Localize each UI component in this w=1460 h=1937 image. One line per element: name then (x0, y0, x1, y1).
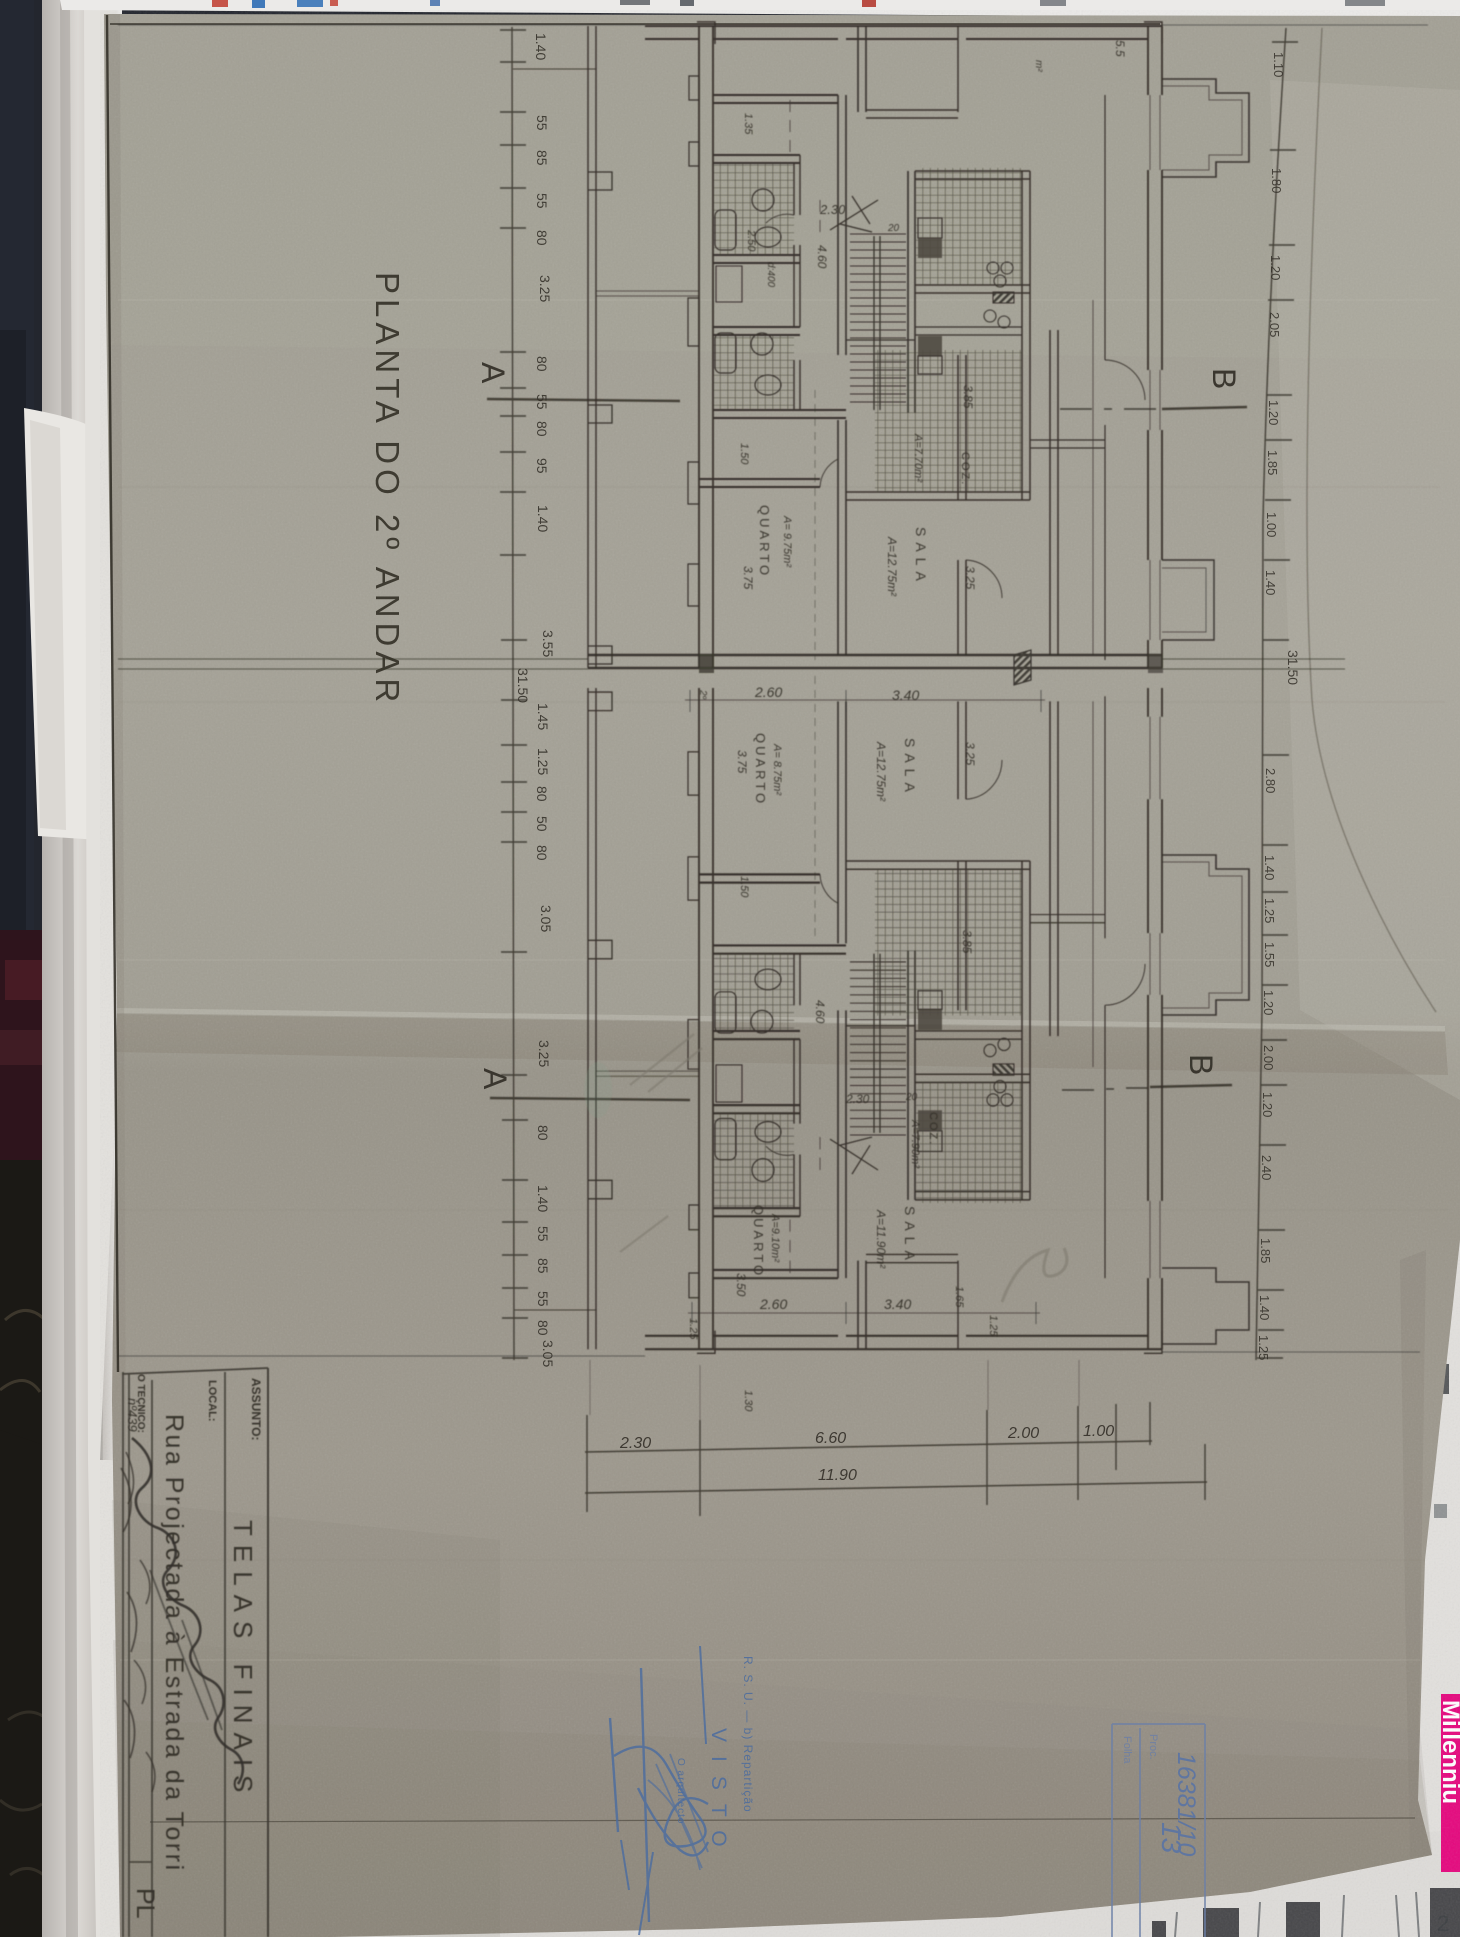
svg-text:1.20: 1.20 (1261, 990, 1276, 1015)
svg-text:11.90: 11.90 (818, 1467, 857, 1484)
svg-text:1.00: 1.00 (1083, 1423, 1114, 1440)
svg-text:1.20: 1.20 (1260, 1092, 1275, 1117)
svg-text:3.25: 3.25 (963, 742, 977, 766)
svg-text:1.40: 1.40 (1263, 570, 1278, 595)
svg-text:A: A (477, 1068, 513, 1090)
svg-text:3.75: 3.75 (741, 566, 755, 590)
svg-text:1.25: 1.25 (687, 1318, 699, 1340)
svg-text:1.80: 1.80 (1269, 168, 1284, 193)
svg-text:Folha: Folha (1121, 1736, 1133, 1764)
svg-text:1.25: 1.25 (1256, 1335, 1271, 1360)
svg-text:1.40: 1.40 (533, 33, 549, 60)
svg-text:95: 95 (534, 458, 550, 474)
svg-text:A=12.75m²: A=12.75m² (885, 536, 899, 597)
svg-text:1.50: 1.50 (738, 876, 750, 898)
svg-text:A= 8.75m²: A= 8.75m² (771, 743, 783, 795)
svg-text:1.35: 1.35 (742, 113, 754, 135)
svg-text:1.40: 1.40 (535, 1185, 551, 1212)
svg-text:1.10: 1.10 (1271, 52, 1286, 77)
svg-text:3.25: 3.25 (536, 1040, 552, 1067)
svg-text:QUARTO: QUARTO (751, 1205, 766, 1278)
svg-text:2.40: 2.40 (1259, 1155, 1274, 1180)
svg-text:55: 55 (534, 394, 550, 410)
svg-text:PL: PL (131, 1888, 159, 1919)
svg-text:1.40: 1.40 (1257, 1295, 1272, 1320)
svg-text:5.5: 5.5 (1113, 40, 1127, 57)
svg-text:80: 80 (535, 1125, 551, 1141)
svg-text:80: 80 (534, 230, 550, 246)
svg-text:80: 80 (534, 421, 550, 437)
svg-text:3.40: 3.40 (892, 687, 919, 703)
svg-text:B: B (1183, 1054, 1219, 1075)
svg-text:80: 80 (534, 786, 550, 802)
svg-text:nº439: nº439 (125, 1398, 140, 1432)
svg-text:2.00: 2.00 (1007, 1425, 1039, 1442)
svg-text:2.00: 2.00 (1261, 1045, 1276, 1070)
svg-text:80: 80 (534, 356, 550, 372)
svg-text:6.60: 6.60 (815, 1430, 846, 1447)
svg-text:20: 20 (905, 1092, 918, 1103)
svg-text:2.60: 2.60 (754, 684, 782, 700)
svg-text:2.30: 2.30 (619, 1435, 651, 1452)
svg-text:31.50: 31.50 (1285, 650, 1301, 685)
svg-text:m²: m² (1033, 60, 1044, 72)
svg-text:R. S. U. — b) Repartição: R. S. U. — b) Repartição (741, 1656, 755, 1813)
svg-text:SALA: SALA (902, 738, 918, 798)
svg-text:1.25: 1.25 (987, 1315, 999, 1337)
svg-text:3.40: 3.40 (884, 1296, 911, 1312)
svg-text:A=11.90m²: A=11.90m² (874, 1209, 888, 1269)
svg-text:2º: 2º (697, 689, 708, 701)
svg-text:LOCAL:: LOCAL: (206, 1380, 218, 1422)
svg-text:3.05: 3.05 (540, 1340, 556, 1367)
svg-text:A=7.70m²: A=7.70m² (912, 433, 924, 482)
svg-text:A= 9.75m²: A= 9.75m² (781, 515, 793, 567)
svg-text:55: 55 (535, 1226, 551, 1242)
svg-text:A=7.90m²: A=7.90m² (909, 1119, 921, 1168)
svg-text:80: 80 (534, 845, 550, 861)
svg-text:2.30: 2.30 (819, 202, 846, 217)
svg-text:2.60: 2.60 (759, 1296, 787, 1312)
svg-text:SALA: SALA (902, 1206, 918, 1266)
svg-text:1.25: 1.25 (535, 748, 551, 775)
svg-text:COZ.: COZ. (959, 452, 971, 486)
svg-text:55: 55 (535, 1291, 551, 1307)
svg-text:55: 55 (534, 193, 550, 209)
svg-text:B: B (1206, 368, 1242, 389)
svg-text:Rua Projectada à Estrada d: Rua Projectada à Estrada da Torri (160, 1414, 188, 1873)
svg-text:1.45: 1.45 (535, 703, 551, 730)
svg-text:1.65: 1.65 (953, 1286, 965, 1308)
svg-text:1.00: 1.00 (1264, 512, 1279, 537)
svg-text:1.25: 1.25 (1262, 898, 1277, 923)
svg-text:PLANTA DO 2º ANDAR: PLANTA DO 2º ANDAR (369, 272, 406, 707)
svg-text:2.30: 2.30 (845, 1092, 870, 1106)
svg-text:3.75: 3.75 (735, 750, 749, 774)
svg-text:TELAS FINAIS: TELAS FINAIS (228, 1520, 258, 1801)
svg-text:QUARTO: QUARTO (757, 505, 772, 578)
svg-text:80: 80 (535, 1320, 551, 1336)
svg-text:3.25: 3.25 (963, 566, 977, 590)
svg-text:COZ.: COZ. (927, 1112, 939, 1146)
svg-text:1.55: 1.55 (1262, 942, 1277, 967)
svg-text:SALA: SALA (913, 527, 929, 587)
svg-text:1.20: 1.20 (1268, 255, 1283, 280)
svg-text:3.55: 3.55 (540, 630, 556, 657)
svg-text:20: 20 (887, 223, 900, 234)
svg-text:3.50: 3.50 (734, 1273, 748, 1297)
svg-text:4.60: 4.60 (815, 245, 829, 269)
svg-text:55: 55 (534, 115, 550, 131)
svg-text:85: 85 (534, 150, 550, 166)
svg-text:1.20: 1.20 (1266, 400, 1281, 425)
svg-text:1.30: 1.30 (742, 1390, 754, 1412)
svg-text:1.50: 1.50 (738, 443, 750, 465)
svg-text:3.85: 3.85 (961, 385, 975, 409)
svg-text:1.40: 1.40 (535, 505, 551, 532)
svg-text:1.40: 1.40 (1262, 855, 1277, 880)
svg-text:2.50: 2.50 (745, 229, 757, 252)
svg-text:QUARTO: QUARTO (753, 733, 768, 806)
svg-text:A=12.75m²: A=12.75m² (874, 741, 888, 802)
svg-text:d:400: d:400 (765, 262, 776, 287)
svg-text:3.85: 3.85 (960, 930, 974, 954)
svg-text:Proc.: Proc. (1147, 1734, 1159, 1760)
svg-text:2.80: 2.80 (1263, 768, 1278, 793)
svg-text:4.60: 4.60 (813, 1000, 827, 1024)
svg-text:50: 50 (534, 816, 550, 832)
svg-text:3.05: 3.05 (538, 905, 554, 932)
svg-text:3.25: 3.25 (537, 275, 553, 302)
svg-text:A: A (475, 362, 511, 384)
svg-text:2.05: 2.05 (1267, 312, 1282, 337)
svg-text:85: 85 (535, 1258, 551, 1274)
svg-text:ASSUNTO:: ASSUNTO: (249, 1378, 263, 1440)
svg-text:1.85: 1.85 (1258, 1238, 1273, 1263)
svg-text:16381/10: 16381/10 (1172, 1752, 1200, 1856)
svg-text:1.85: 1.85 (1265, 450, 1280, 475)
svg-text:A=9.10m²: A=9.10m² (769, 1213, 781, 1262)
svg-text:VISTO: VISTO (707, 1728, 730, 1861)
svg-text:31.50: 31.50 (515, 668, 531, 703)
